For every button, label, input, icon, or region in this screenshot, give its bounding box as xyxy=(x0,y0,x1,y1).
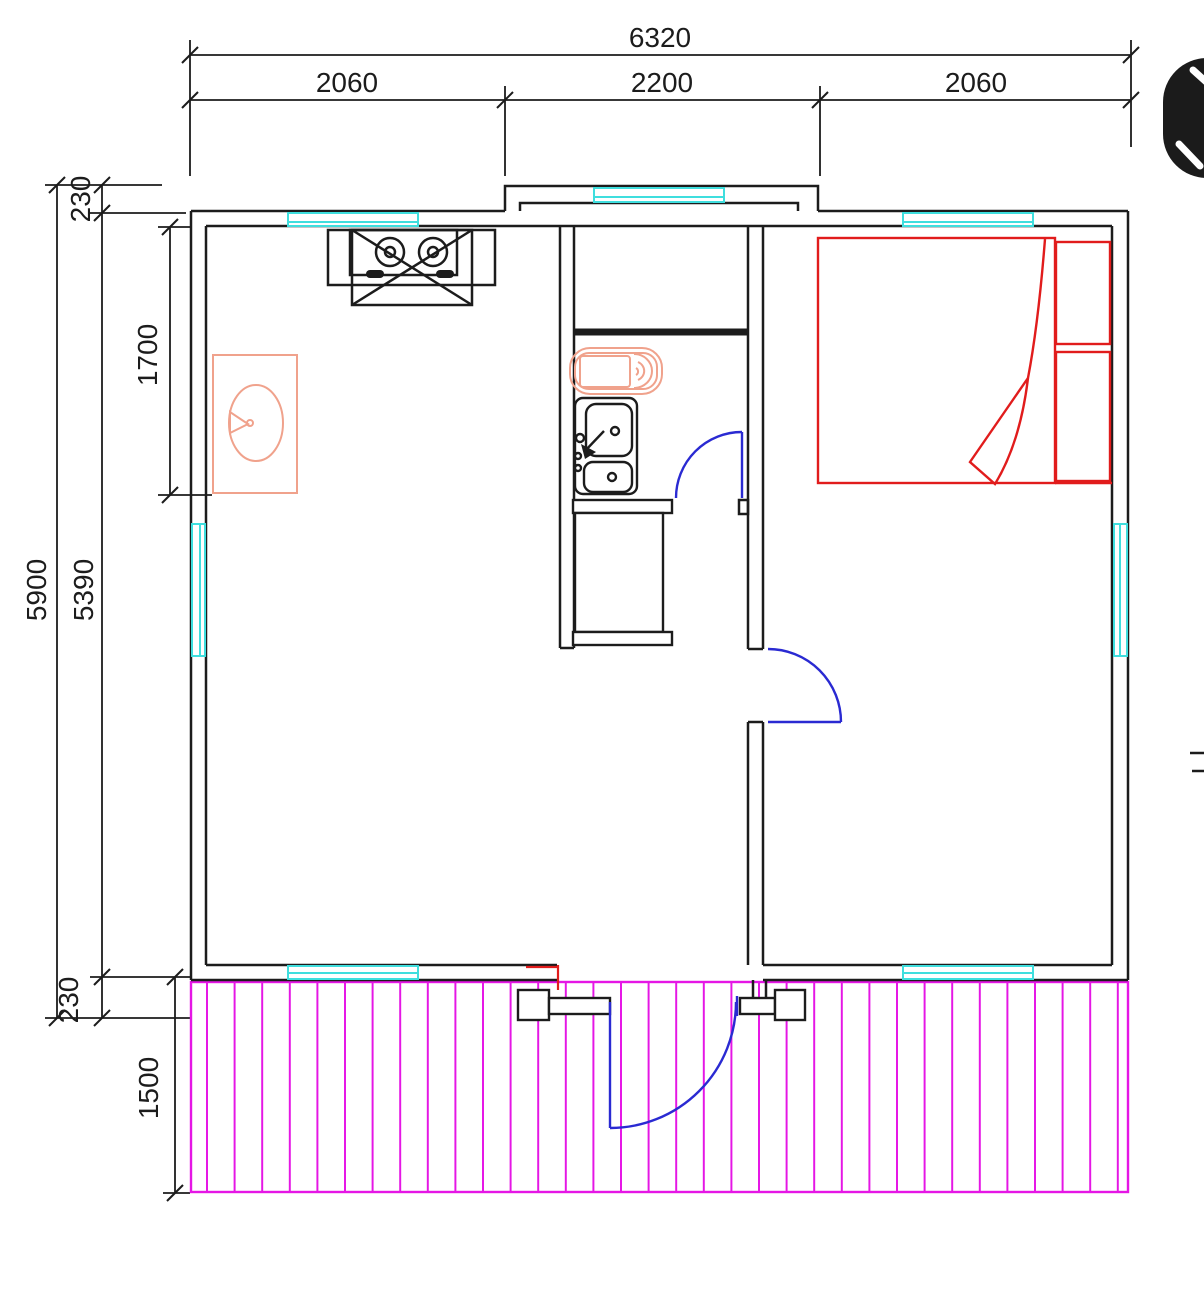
floor-plan-drawing: 6320 2060 2200 2060 230 1700 5900 5390 2… xyxy=(0,0,1204,1298)
dim-interior-height: 5390 xyxy=(68,559,99,621)
kitchen-sink xyxy=(575,398,637,494)
edge-marks xyxy=(1190,753,1204,771)
window-left-wall xyxy=(192,524,205,656)
dim-segment-right: 2060 xyxy=(945,67,1007,98)
window-bottom-right xyxy=(903,966,1033,979)
dim-bottom-wall: 230 xyxy=(53,977,84,1024)
window-bottom-left xyxy=(288,966,418,979)
window-top-right xyxy=(903,213,1033,226)
counter-cabinet xyxy=(573,500,672,645)
stove-knob xyxy=(366,270,384,278)
washbasin xyxy=(213,355,297,493)
bathroom-door xyxy=(676,432,742,498)
dim-segment-left: 2060 xyxy=(316,67,378,98)
floor-plan-page: 6320 2060 2200 2060 230 1700 5900 5390 2… xyxy=(0,0,1204,1298)
deck xyxy=(191,982,1128,1192)
window-bathroom-bump xyxy=(594,188,724,202)
window-right-wall xyxy=(1114,524,1127,656)
bed xyxy=(818,238,1112,484)
stove-knob xyxy=(436,270,454,278)
dim-deck-depth: 1500 xyxy=(133,1057,164,1119)
dim-overall-height: 5900 xyxy=(21,559,52,621)
window-top-left xyxy=(288,213,418,226)
dim-top-wall: 230 xyxy=(65,176,96,223)
bedroom-door xyxy=(768,649,841,722)
dim-segment-middle: 2200 xyxy=(631,67,693,98)
dim-kitchen-zone: 1700 xyxy=(132,324,163,386)
kitchen-stove xyxy=(328,230,495,305)
toilet xyxy=(570,348,662,394)
expand-diagonal-icon[interactable] xyxy=(1163,58,1204,178)
dim-total-width: 6320 xyxy=(629,22,691,53)
